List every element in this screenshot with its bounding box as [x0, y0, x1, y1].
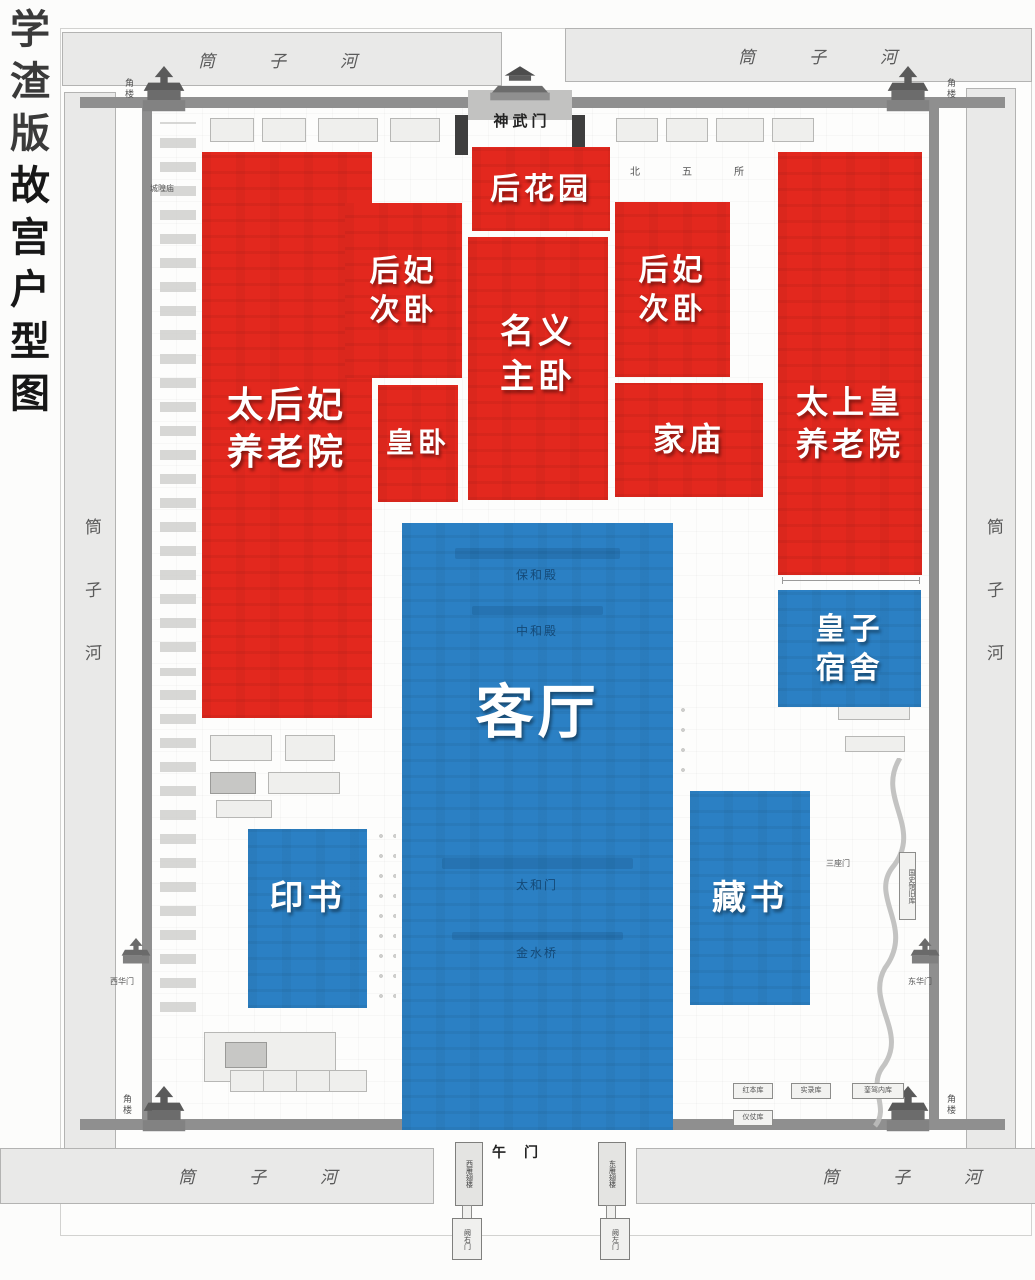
building-block	[616, 118, 658, 142]
shenwumen-gate-icon	[486, 66, 554, 108]
corner-tower-label-southeast: 角楼	[944, 1094, 957, 1116]
map-region-label: 藏书	[712, 876, 788, 920]
golden-water-bridge-label: 金水桥	[482, 944, 592, 961]
page-title: 学渣版故宫户型图	[6, 8, 46, 424]
west-glory-gate-icon	[116, 938, 156, 976]
map-region-nominal-master-bedroom: 名义主卧	[468, 237, 608, 500]
west-wing-stub	[462, 1205, 472, 1219]
map-region-retired-emperor-home: 太上皇养老院	[778, 152, 922, 575]
east-wing-stub	[606, 1205, 616, 1219]
west-wing-tower-label: 西雁翅楼	[466, 1160, 473, 1188]
map-region-consorts-bedroom-west: 后妃次卧	[345, 203, 462, 378]
red-book-store-label: 红本库	[733, 1083, 773, 1099]
west-corridor-buildings	[160, 122, 196, 652]
city-god-temple-label: 城隍庙	[150, 183, 174, 194]
southwest-hall-inner	[225, 1042, 267, 1068]
wumen-label: 午门	[486, 1142, 562, 1162]
tree-row-east-of-hall	[676, 700, 694, 786]
moat-label-west: 筒子河	[79, 517, 104, 708]
building-block	[716, 118, 764, 142]
title-prefix: 学渣版	[3, 8, 49, 164]
corner-tower-label-northwest: 角楼	[122, 78, 135, 100]
moat-label-top-east: 筒子河	[738, 43, 951, 68]
map-region-label: 后妃次卧	[639, 251, 707, 329]
moat-label-top-west: 筒子河	[198, 47, 411, 72]
north-five-halls-label: 北五所	[630, 163, 786, 178]
west-corridor-buildings-lower	[160, 668, 196, 1012]
map-region-label: 太上皇养老院	[796, 382, 904, 465]
west-que-gate: 阙右门	[452, 1218, 482, 1260]
baohe-hall-label: 保和殿	[482, 566, 592, 583]
east-que-gate-label: 阙左门	[612, 1229, 619, 1250]
west-wing-tower: 西雁翅楼	[455, 1142, 483, 1206]
store-row-box	[263, 1070, 297, 1092]
north-wall-east	[572, 97, 1005, 108]
map-region-label: 后妃次卧	[370, 252, 438, 330]
neiwufu-building	[210, 735, 272, 761]
corner-tower-southwest-icon	[136, 1086, 192, 1138]
regalia-store-label: 仪仗库	[733, 1110, 773, 1126]
corner-tower-label-northeast: 角楼	[944, 78, 957, 100]
building-block	[772, 118, 814, 142]
building-block	[318, 118, 378, 142]
neiwufu-building	[285, 735, 335, 761]
map-region-consorts-bedroom-east: 后妃次卧	[615, 202, 730, 377]
map-region-book-printing: 印书	[248, 829, 367, 1008]
moat-label-bottom-east: 筒子河	[822, 1163, 1035, 1188]
map-region-back-garden: 后花园	[472, 147, 610, 231]
baohe-hall-silhouette	[455, 548, 620, 559]
map-region-book-collection: 藏书	[690, 791, 810, 1005]
neiwufu-building	[210, 772, 256, 794]
map-region-princes-dormitory: 皇子宿舍	[778, 590, 921, 707]
west-glory-gate-label: 西华门	[110, 976, 134, 987]
map-region-emperor-bedroom: 皇卧	[378, 385, 458, 502]
map-region-label: 皇卧	[386, 425, 450, 461]
history-archive-label: 国史馆旧库	[899, 852, 916, 920]
east-que-gate: 阙左门	[600, 1218, 630, 1260]
three-seat-gate-label: 三座门	[826, 858, 850, 869]
taihe-gate-label: 太和门	[482, 876, 592, 893]
east-court-building	[845, 736, 905, 752]
map-region-label: 太后妃养老院	[227, 383, 347, 477]
tree-row-west-of-hall	[374, 826, 396, 1012]
map-region-label: 家庙	[653, 419, 725, 461]
building-block	[666, 118, 708, 142]
store-row-box	[230, 1070, 264, 1092]
neiwufu-building	[268, 772, 340, 794]
neiwufu-building	[216, 800, 272, 818]
zhonghe-hall-silhouette	[472, 606, 603, 615]
moat-label-bottom-west: 筒子河	[178, 1163, 391, 1188]
east-wing-tower-label: 东雁翅楼	[609, 1160, 616, 1188]
shenwumen-label: 神武门	[480, 110, 564, 131]
zhonghe-hall-label: 中和殿	[482, 622, 592, 639]
map-region-family-temple: 家庙	[615, 383, 763, 497]
carriage-store-label: 銮驾内库	[852, 1083, 904, 1099]
store-row-box	[329, 1070, 367, 1092]
moat-label-east: 筒子河	[981, 517, 1006, 708]
north-gate-post-west	[455, 115, 468, 155]
map-region-label: 后花园	[490, 170, 592, 209]
east-glory-gate-icon	[905, 938, 945, 976]
map-region-label: 皇子宿舍	[816, 610, 884, 688]
map-region-label: 客厅	[475, 675, 599, 750]
corner-tower-northwest-icon	[136, 66, 192, 118]
map-region-label: 名义主卧	[500, 310, 576, 398]
east-wing-tower: 东雁翅楼	[598, 1142, 626, 1206]
title-main: 故宫户型图	[3, 164, 49, 424]
building-block	[262, 118, 306, 142]
store-row-box	[296, 1070, 330, 1092]
golden-water-bridge-silhouette	[452, 932, 623, 940]
east-glory-gate-label: 东华门	[908, 976, 932, 987]
building-block	[390, 118, 440, 142]
dimension-line	[782, 580, 920, 581]
slacker-forbidden-city-floorplan: 学渣版故宫户型图 筒子河 筒子河 筒子河 筒子河 筒子河 筒子河 角楼 角楼 角…	[0, 0, 1035, 1280]
building-block	[210, 118, 254, 142]
taihe-gate-silhouette	[442, 858, 633, 869]
map-region-label: 印书	[270, 876, 346, 920]
records-store-label: 实录库	[791, 1083, 831, 1099]
corner-tower-label-southwest: 角楼	[120, 1094, 133, 1116]
west-que-gate-label: 阙右门	[464, 1229, 471, 1250]
corner-tower-northeast-icon	[880, 66, 936, 118]
